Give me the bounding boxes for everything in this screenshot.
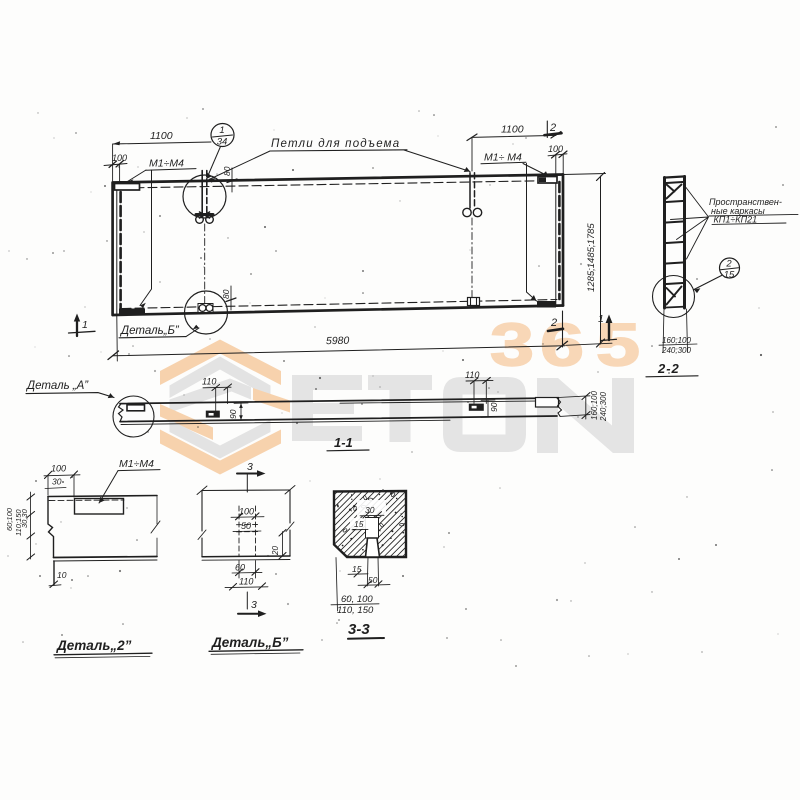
svg-text:100: 100 [51, 464, 66, 474]
svg-text:50: 50 [241, 521, 251, 531]
svg-text:80: 80 [222, 166, 232, 176]
svg-text:3: 3 [251, 599, 257, 611]
svg-text:240;300: 240;300 [599, 392, 608, 422]
svg-text:15: 15 [724, 270, 735, 281]
svg-text:80: 80 [221, 289, 231, 299]
svg-text:М1÷М4: М1÷М4 [149, 158, 184, 170]
svg-text:Деталь„Б”: Деталь„Б” [211, 635, 289, 650]
svg-text:1100: 1100 [501, 124, 524, 136]
svg-text:1: 1 [598, 313, 604, 325]
svg-text:20: 20 [271, 546, 280, 556]
svg-text:1: 1 [82, 319, 88, 331]
svg-text:15: 15 [352, 564, 362, 574]
svg-text:3-3: 3-3 [348, 621, 370, 638]
svg-text:30: 30 [365, 505, 375, 515]
svg-text:60, 100: 60, 100 [341, 594, 373, 605]
svg-text:М1÷ М4: М1÷ М4 [484, 152, 522, 164]
svg-text:90: 90 [489, 402, 499, 412]
svg-text:5980: 5980 [326, 335, 350, 347]
svg-text:30: 30 [52, 477, 62, 487]
svg-text:2: 2 [550, 317, 557, 329]
svg-text:3: 3 [490, 311, 534, 378]
svg-text:110, 150: 110, 150 [337, 605, 374, 616]
svg-text:1: 1 [219, 125, 224, 136]
svg-text:Деталь„2”: Деталь„2” [56, 638, 132, 653]
svg-text:1285;1485;1785: 1285;1485;1785 [586, 223, 597, 292]
svg-text:3: 3 [247, 461, 253, 473]
svg-text:160;100: 160;100 [590, 391, 599, 420]
svg-text:2: 2 [725, 259, 732, 270]
svg-text:15: 15 [354, 519, 364, 529]
svg-text:1100: 1100 [150, 130, 173, 142]
svg-text:100: 100 [112, 153, 127, 163]
svg-text:240;300: 240;300 [661, 346, 691, 355]
svg-text:90: 90 [228, 409, 238, 419]
svg-text:М1÷М4: М1÷М4 [119, 458, 154, 470]
svg-text:Деталь„Б”: Деталь„Б” [119, 325, 180, 337]
svg-text:34: 34 [217, 137, 228, 148]
svg-text:110: 110 [202, 377, 216, 387]
svg-text:2: 2 [549, 122, 556, 134]
svg-text:110: 110 [239, 577, 253, 587]
svg-text:100: 100 [548, 144, 563, 154]
svg-text:Петли для подъема: Петли для подъема [271, 138, 400, 150]
svg-text:Деталь „А”: Деталь „А” [25, 380, 89, 392]
svg-text:60;100: 60;100 [5, 507, 14, 531]
svg-text:10: 10 [57, 570, 67, 580]
svg-text:30,30: 30,30 [20, 508, 29, 528]
svg-text:1-1: 1-1 [334, 435, 353, 450]
svg-text:50: 50 [368, 575, 378, 585]
svg-text:2-2: 2-2 [657, 361, 680, 376]
svg-text:160;100: 160;100 [662, 336, 691, 345]
